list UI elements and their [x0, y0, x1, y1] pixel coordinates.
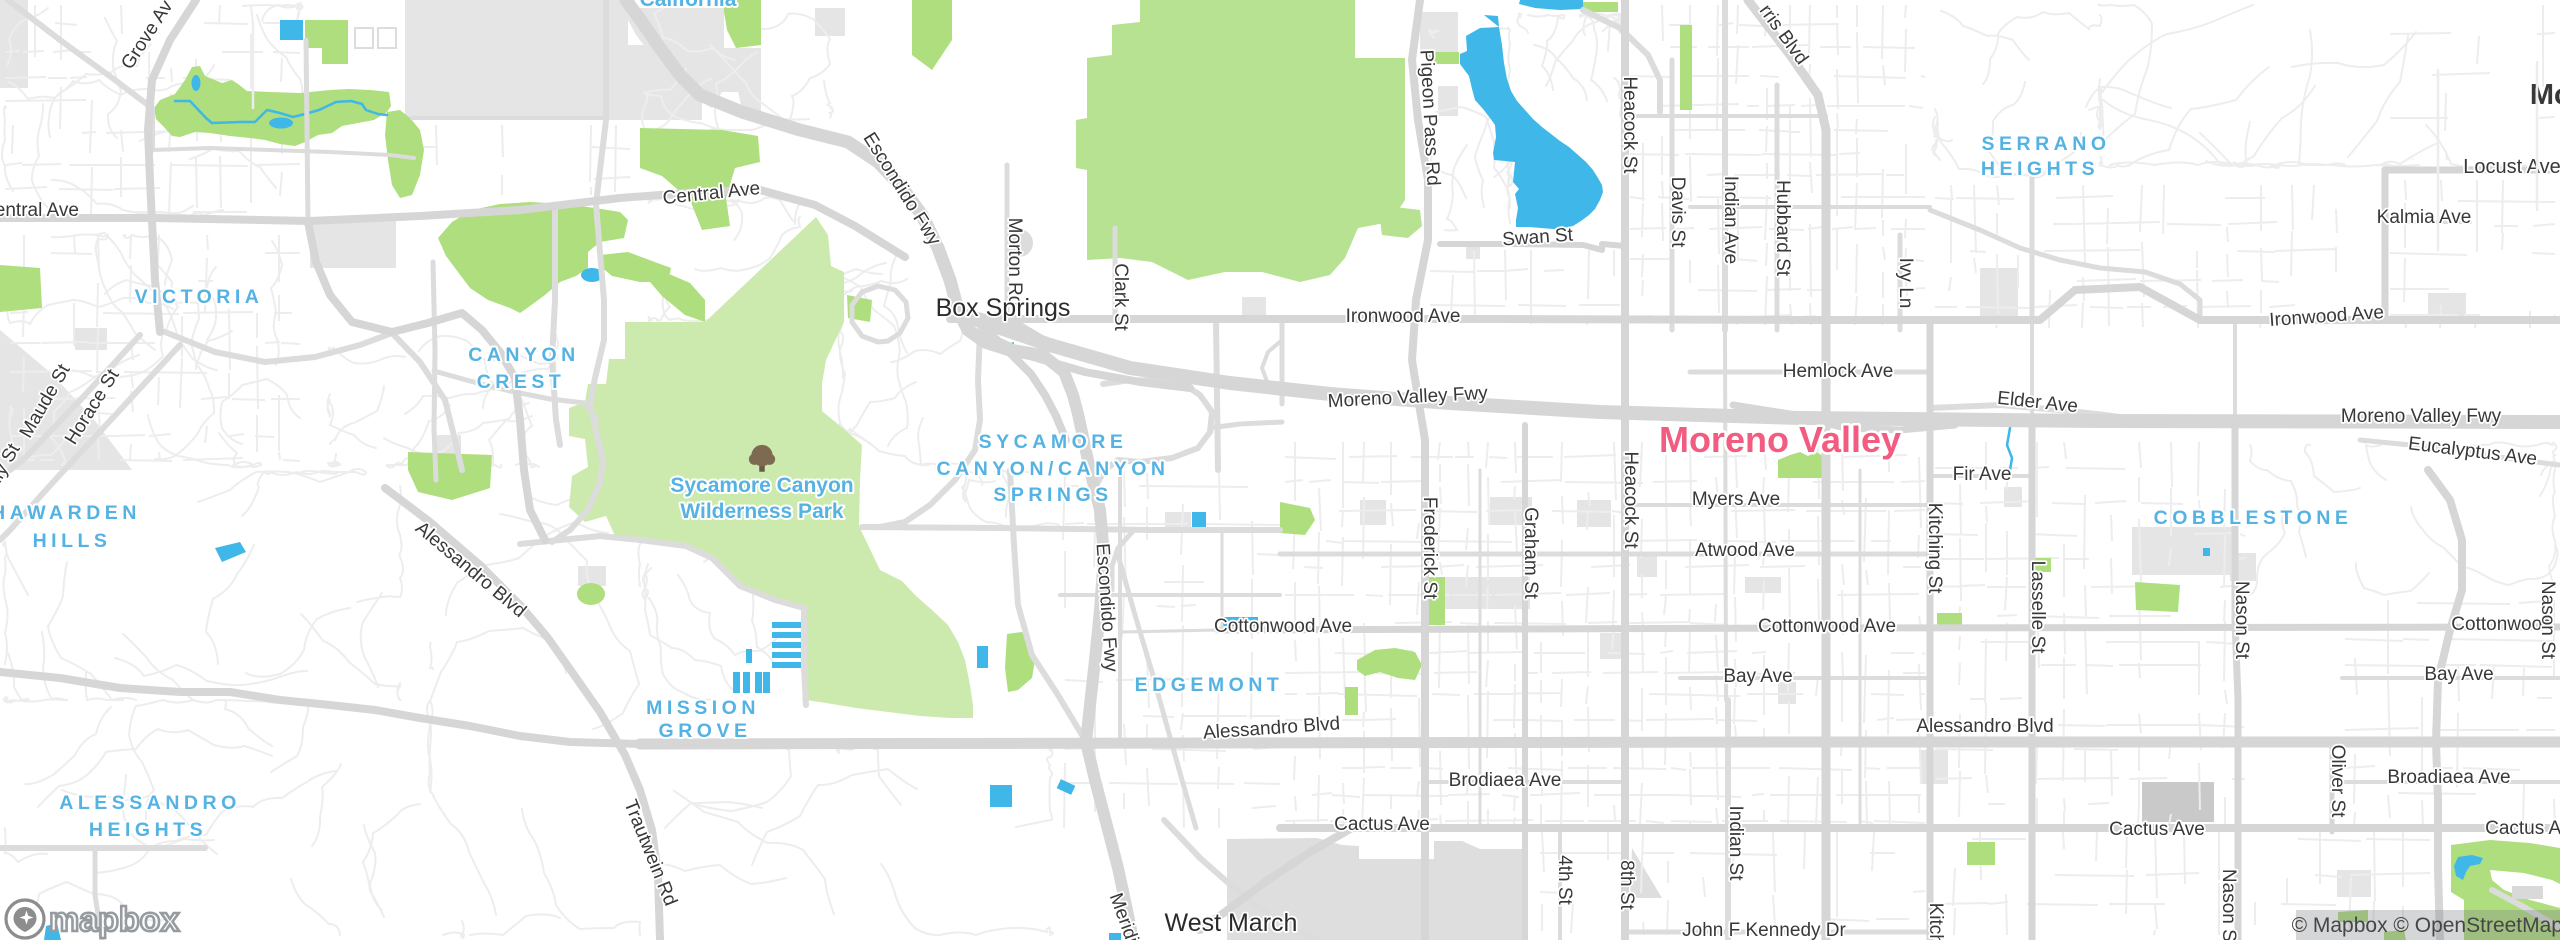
- svg-text:CANYON: CANYON: [468, 344, 580, 366]
- svg-text:Nason St: Nason St: [2218, 869, 2239, 940]
- svg-text:Cottonwood Ave: Cottonwood Ave: [1214, 616, 1352, 637]
- svg-text:CANYON/CANYON: CANYON/CANYON: [937, 458, 1170, 480]
- svg-text:Heacock St: Heacock St: [1619, 76, 1640, 174]
- svg-text:Lasselle St: Lasselle St: [2027, 561, 2048, 655]
- svg-text:Myers Ave: Myers Ave: [1692, 489, 1780, 510]
- svg-text:Broadiaea Ave: Broadiaea Ave: [2387, 767, 2510, 788]
- svg-text:Cactus Ave: Cactus Ave: [2109, 819, 2205, 840]
- svg-text:VICTORIA: VICTORIA: [135, 286, 264, 308]
- svg-text:Mc: Mc: [2530, 79, 2560, 111]
- svg-text:Bay Ave: Bay Ave: [2424, 664, 2493, 685]
- svg-text:Cottonwood Ave: Cottonwood Ave: [1758, 616, 1896, 637]
- svg-text:Frederick St: Frederick St: [1419, 497, 1440, 600]
- svg-text:HAWARDEN: HAWARDEN: [0, 502, 141, 524]
- svg-text:Clark St: Clark St: [1110, 263, 1131, 331]
- svg-text:mapbox: mapbox: [49, 901, 179, 939]
- svg-text:Kitching St: Kitching St: [1925, 903, 1946, 940]
- svg-text:Indian St: Indian St: [1725, 806, 1746, 882]
- svg-text:CREST: CREST: [477, 371, 566, 393]
- svg-text:Cactus Ave: Cactus Ave: [2485, 818, 2560, 839]
- svg-text:HEIGHTS: HEIGHTS: [89, 819, 207, 841]
- svg-text:West March: West March: [1165, 909, 1298, 937]
- svg-text:GROVE: GROVE: [659, 720, 752, 742]
- svg-text:Moreno Valley: Moreno Valley: [1659, 419, 1901, 460]
- svg-text:John F Kennedy Dr: John F Kennedy Dr: [1682, 920, 1846, 940]
- svg-text:EDGEMONT: EDGEMONT: [1135, 674, 1284, 696]
- svg-text:Bay Ave: Bay Ave: [1723, 666, 1792, 687]
- svg-text:Hemlock Ave: Hemlock Ave: [1783, 361, 1894, 382]
- svg-text:Ironwood Ave: Ironwood Ave: [1346, 306, 1461, 327]
- svg-text:Indian Ave: Indian Ave: [1720, 176, 1741, 264]
- svg-text:Nason St: Nason St: [2537, 581, 2558, 660]
- svg-text:Atwood Ave: Atwood Ave: [1695, 540, 1795, 561]
- svg-text:HEIGHTS: HEIGHTS: [1981, 158, 2099, 180]
- svg-text:Sycamore Canyon: Sycamore Canyon: [670, 474, 853, 497]
- svg-text:4th St: 4th St: [1554, 855, 1575, 905]
- svg-text:California: California: [640, 0, 737, 11]
- svg-text:Oliver St: Oliver St: [2327, 745, 2348, 819]
- svg-text:Box Springs: Box Springs: [936, 294, 1071, 322]
- svg-text:Nason St: Nason St: [2231, 581, 2252, 660]
- svg-text:ALESSANDRO: ALESSANDRO: [59, 792, 241, 814]
- svg-text:Brodiaea Ave: Brodiaea Ave: [1449, 770, 1562, 791]
- svg-text:Ivy Ln: Ivy Ln: [1895, 258, 1916, 309]
- svg-text:COBBLESTONE: COBBLESTONE: [2154, 507, 2353, 529]
- svg-text:Graham St: Graham St: [1520, 507, 1541, 600]
- svg-text:Cactus Ave: Cactus Ave: [1334, 814, 1430, 835]
- svg-text:Central Ave: Central Ave: [0, 200, 79, 221]
- svg-text:8th St: 8th St: [1616, 860, 1637, 910]
- svg-text:Locust Ave: Locust Ave: [2463, 156, 2560, 178]
- svg-text:HILLS: HILLS: [33, 530, 112, 552]
- svg-text:SERRANO: SERRANO: [1981, 133, 2110, 155]
- svg-text:Kitching St: Kitching St: [1924, 503, 1945, 595]
- svg-text:Hubbard St: Hubbard St: [1772, 180, 1793, 277]
- svg-text:Wilderness Park: Wilderness Park: [680, 500, 844, 523]
- svg-text:MISSION: MISSION: [646, 697, 760, 719]
- svg-text:Alessandro Blvd: Alessandro Blvd: [1916, 716, 2053, 737]
- svg-text:Fir Ave: Fir Ave: [1953, 464, 2012, 485]
- svg-text:Heacock St: Heacock St: [1620, 451, 1641, 549]
- svg-text:SYCAMORE: SYCAMORE: [979, 431, 1128, 453]
- svg-text:Davis St: Davis St: [1667, 177, 1688, 248]
- svg-text:SPRINGS: SPRINGS: [993, 484, 1112, 506]
- svg-text:Moreno Valley Fwy: Moreno Valley Fwy: [2341, 406, 2502, 427]
- svg-text:Kalmia Ave: Kalmia Ave: [2377, 207, 2472, 228]
- svg-text:© Mapbox © OpenStreetMap: © Mapbox © OpenStreetMap: [2292, 914, 2560, 937]
